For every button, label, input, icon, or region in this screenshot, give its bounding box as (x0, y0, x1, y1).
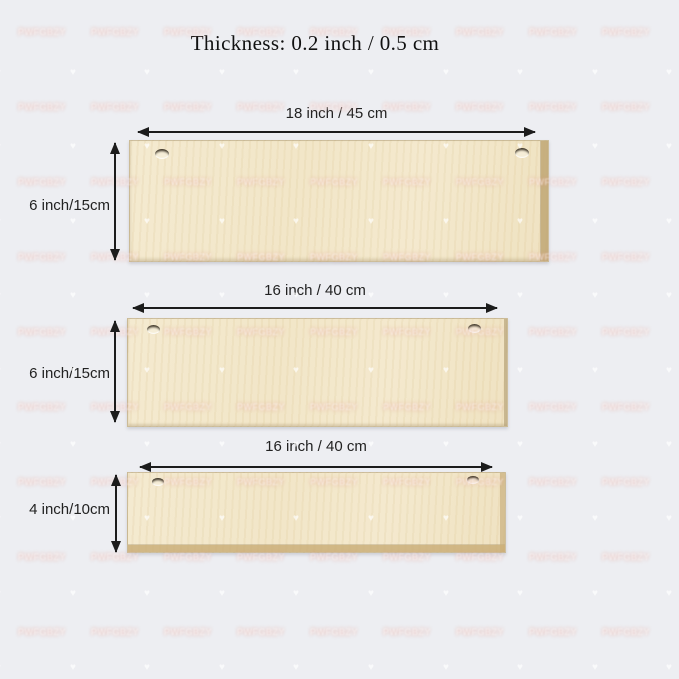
heart-watermark-icon: ♥ (666, 141, 672, 152)
heart-watermark-icon: ♥ (144, 588, 150, 599)
watermark-text: PWFGBZY (602, 252, 646, 262)
heart-watermark-icon: ♥ (0, 588, 1, 599)
heart-watermark-icon: ♥ (0, 365, 1, 376)
product-dimension-diagram: Thickness: 0.2 inch / 0.5 cm PWFGBZYPWFG… (0, 0, 679, 679)
heart-watermark-icon: ♥ (144, 662, 150, 673)
heart-watermark-icon: ♥ (592, 439, 598, 450)
watermark-text: PWFGBZY (237, 552, 281, 562)
board3-height-arrow (115, 475, 117, 552)
heart-watermark-icon: ♥ (517, 439, 523, 450)
watermark-text: PWFGBZY (529, 327, 573, 337)
heart-watermark-icon: ♥ (517, 513, 523, 524)
board1-height-arrow (114, 143, 116, 260)
heart-watermark-icon: ♥ (70, 141, 76, 152)
watermark-text: PWFGBZY (18, 477, 62, 487)
hanging-hole-left (152, 478, 164, 486)
heart-watermark-icon: ♥ (70, 290, 76, 301)
heart-watermark-icon: ♥ (666, 588, 672, 599)
heart-watermark-icon: ♥ (0, 662, 1, 673)
heart-watermark-icon: ♥ (219, 588, 225, 599)
watermark-text: PWFGBZY (602, 102, 646, 112)
watermark-text: PWFGBZY (310, 627, 354, 637)
heart-watermark-icon: ♥ (443, 67, 449, 78)
watermark-text: PWFGBZY (18, 552, 62, 562)
watermark-text: PWFGBZY (529, 102, 573, 112)
hanging-hole-left (155, 149, 169, 159)
heart-watermark-icon: ♥ (592, 513, 598, 524)
watermark-text: PWFGBZY (18, 252, 62, 262)
wood-board-16x40-tall (127, 318, 508, 427)
watermark-text: PWFGBZY (602, 627, 646, 637)
heart-watermark-icon: ♥ (592, 290, 598, 301)
watermark-text: PWFGBZY (602, 402, 646, 412)
heart-watermark-icon: ♥ (70, 439, 76, 450)
heart-watermark-icon: ♥ (666, 216, 672, 227)
wood-board-16x40-short (127, 472, 506, 553)
heart-watermark-icon: ♥ (592, 141, 598, 152)
heart-watermark-icon: ♥ (0, 216, 1, 227)
watermark-text: PWFGBZY (91, 627, 135, 637)
board3-height-label: 4 inch/10cm (14, 501, 110, 518)
watermark-text: PWFGBZY (91, 552, 135, 562)
heart-watermark-icon: ♥ (592, 67, 598, 78)
board2-width-arrow (133, 307, 497, 309)
heart-watermark-icon: ♥ (70, 662, 76, 673)
watermark-text: PWFGBZY (529, 477, 573, 487)
heart-watermark-icon: ♥ (293, 588, 299, 599)
heart-watermark-icon: ♥ (0, 513, 1, 524)
board1-width-label: 18 inch / 45 cm (138, 105, 535, 122)
heart-watermark-icon: ♥ (0, 439, 1, 450)
heart-watermark-icon: ♥ (368, 662, 374, 673)
heart-watermark-icon: ♥ (592, 662, 598, 673)
hanging-hole-right (515, 148, 529, 158)
board2-width-label: 16 inch / 40 cm (133, 282, 497, 299)
heart-watermark-icon: ♥ (0, 290, 1, 301)
heart-watermark-icon: ♥ (592, 588, 598, 599)
board3-width-arrow (140, 466, 492, 468)
heart-watermark-icon: ♥ (70, 67, 76, 78)
watermark-text: PWFGBZY (456, 627, 500, 637)
heart-watermark-icon: ♥ (666, 662, 672, 673)
watermark-text: PWFGBZY (18, 627, 62, 637)
watermark-text: PWFGBZY (91, 102, 135, 112)
hanging-hole-right (467, 476, 479, 484)
heart-watermark-icon: ♥ (517, 588, 523, 599)
board2-height-label: 6 inch/15cm (14, 365, 110, 382)
heart-watermark-icon: ♥ (0, 141, 1, 152)
heart-watermark-icon: ♥ (517, 67, 523, 78)
heart-watermark-icon: ♥ (592, 216, 598, 227)
watermark-text: PWFGBZY (18, 327, 62, 337)
heart-watermark-icon: ♥ (293, 67, 299, 78)
wood-board-18x45 (129, 140, 549, 262)
heart-watermark-icon: ♥ (0, 67, 1, 78)
watermark-text: PWFGBZY (237, 627, 281, 637)
heart-watermark-icon: ♥ (144, 67, 150, 78)
board3-width-label: 16 inch / 40 cm (140, 438, 492, 455)
heart-watermark-icon: ♥ (293, 662, 299, 673)
watermark-text: PWFGBZY (602, 327, 646, 337)
watermark-text: PWFGBZY (529, 552, 573, 562)
heart-watermark-icon: ♥ (368, 588, 374, 599)
thickness-title: Thickness: 0.2 inch / 0.5 cm (0, 31, 630, 56)
board2-height-arrow (114, 321, 116, 422)
watermark-text: PWFGBZY (383, 627, 427, 637)
watermark-text: PWFGBZY (529, 402, 573, 412)
heart-watermark-icon: ♥ (517, 662, 523, 673)
watermark-text: PWFGBZY (164, 552, 208, 562)
heart-watermark-icon: ♥ (666, 439, 672, 450)
watermark-text: PWFGBZY (529, 627, 573, 637)
watermark-text: PWFGBZY (18, 177, 62, 187)
heart-watermark-icon: ♥ (666, 513, 672, 524)
watermark-text: PWFGBZY (164, 627, 208, 637)
heart-watermark-icon: ♥ (70, 216, 76, 227)
heart-watermark-icon: ♥ (70, 588, 76, 599)
heart-watermark-icon: ♥ (666, 290, 672, 301)
watermark-text: PWFGBZY (18, 402, 62, 412)
heart-watermark-icon: ♥ (592, 365, 598, 376)
heart-watermark-icon: ♥ (517, 365, 523, 376)
heart-watermark-icon: ♥ (219, 662, 225, 673)
watermark-text: PWFGBZY (18, 102, 62, 112)
watermark-text: PWFGBZY (383, 552, 427, 562)
heart-watermark-icon: ♥ (517, 290, 523, 301)
heart-watermark-icon: ♥ (666, 365, 672, 376)
heart-watermark-icon: ♥ (368, 67, 374, 78)
hanging-hole-left (147, 325, 160, 334)
heart-watermark-icon: ♥ (443, 588, 449, 599)
watermark-text: PWFGBZY (456, 552, 500, 562)
watermark-text: PWFGBZY (310, 552, 354, 562)
watermark-text: PWFGBZY (602, 552, 646, 562)
board1-height-label: 6 inch/15cm (14, 197, 110, 214)
watermark-text: PWFGBZY (602, 477, 646, 487)
board1-width-arrow (138, 131, 535, 133)
heart-watermark-icon: ♥ (666, 67, 672, 78)
heart-watermark-icon: ♥ (219, 67, 225, 78)
heart-watermark-icon: ♥ (443, 662, 449, 673)
hanging-hole-right (468, 324, 481, 333)
watermark-text: PWFGBZY (602, 177, 646, 187)
